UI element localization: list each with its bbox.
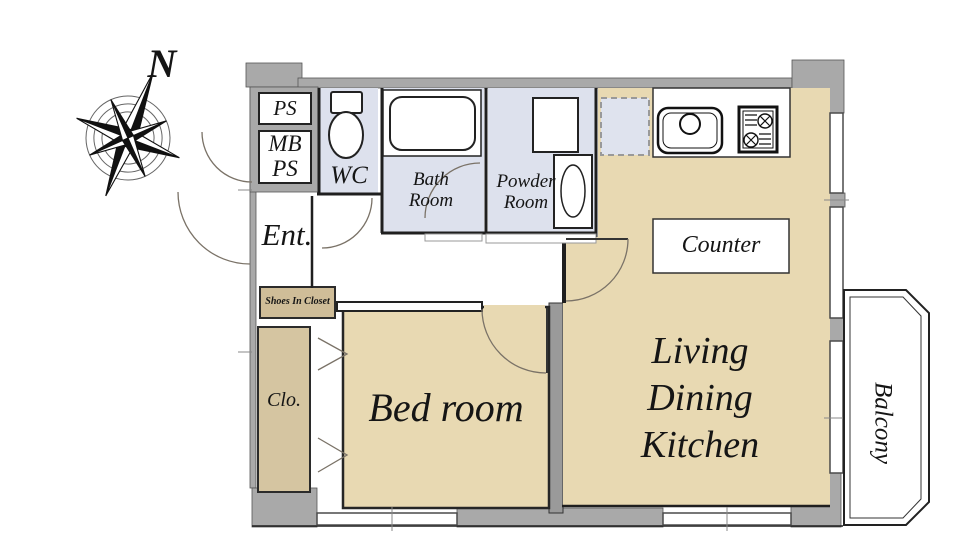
kitchen-sink-icon	[658, 108, 722, 153]
bath-room-label-line1: Bath	[413, 170, 449, 191]
window-right-3	[830, 341, 843, 473]
threshold-bath	[425, 234, 482, 241]
ldk-label-line1: Living	[651, 328, 748, 375]
mb-label: MB	[268, 132, 301, 157]
ldk-label-line2: Dining	[647, 375, 753, 422]
wc-label: WC	[320, 158, 378, 192]
window-right-1	[830, 113, 843, 193]
door-arc-entrance	[178, 192, 250, 264]
wall-hall-bedroom	[337, 302, 482, 311]
bedroom-label: Bed room	[343, 382, 549, 434]
washer-space-icon	[533, 98, 578, 152]
door-arc-wc	[322, 198, 372, 248]
bathtub-icon	[390, 97, 475, 150]
pillar-bottom-left	[252, 488, 317, 527]
window-right-2	[830, 207, 843, 318]
mb-ps-label: PS	[272, 157, 298, 182]
bath-room-label-line2: Room	[409, 191, 453, 212]
ldk-label-line3: Kitchen	[641, 422, 759, 469]
stove-icon	[739, 107, 777, 152]
wall-top-left-block	[246, 63, 302, 87]
floor-plan: N PS MB PS WC Bath Room Powder Room Ent.…	[0, 0, 964, 552]
door-arc-meter-box	[202, 132, 252, 182]
bedroom-door-opening	[484, 305, 545, 310]
toilet-icon	[329, 92, 363, 158]
refrigerator-space	[601, 98, 649, 155]
compass-north-label: N	[138, 42, 186, 86]
powder-room-label-line1: Powder	[496, 172, 555, 193]
ldk-floor-nook	[563, 237, 598, 505]
wall-top	[298, 78, 792, 88]
shoes-closet-label: Shoes In Closet	[260, 288, 335, 317]
window-bedroom-bottom	[317, 513, 457, 525]
powder-room-label-line2: Room	[504, 193, 548, 214]
ps-label: PS	[259, 93, 311, 124]
counter-label: Counter	[653, 228, 789, 264]
entrance-label: Ent.	[256, 214, 318, 256]
balcony-label: Balcony	[862, 350, 904, 495]
wall-bedroom-ldk-divider	[549, 303, 563, 513]
closet-label: Clo.	[258, 384, 310, 418]
